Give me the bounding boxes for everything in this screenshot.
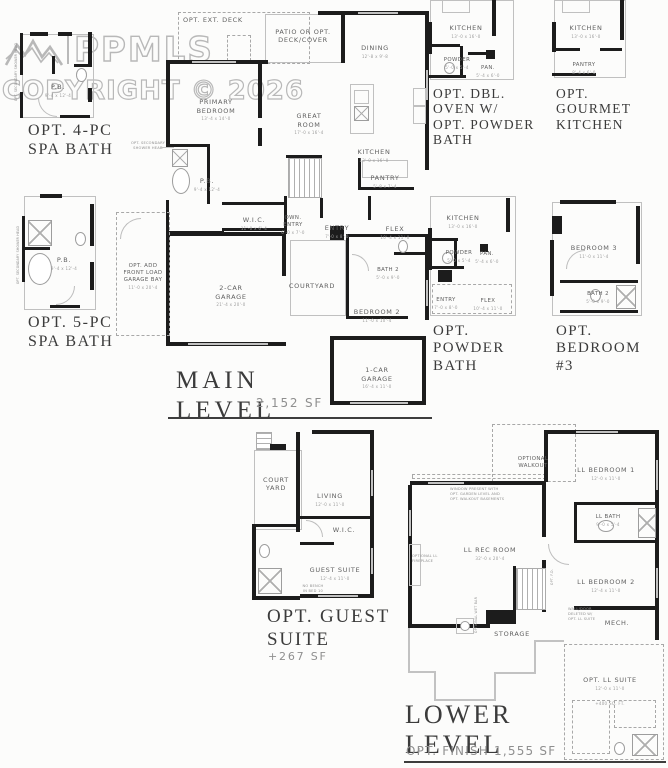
inset-title: OPT. GOURMET KITCHEN (556, 86, 631, 132)
tiny-annotation: OPT. SECONDARY SHOWER HEAD (16, 210, 21, 300)
room-label: LIVING12'-0 x 11'-0 (306, 484, 354, 507)
room-label: BEDROOM 311'-0 x 11'-4 (564, 236, 624, 259)
room-label: STORAGE (486, 630, 538, 638)
room-label: PANTRY8'-4 x 6'-0 (560, 55, 608, 75)
room-label: ENTRY7'-0 x 8'-0 (316, 216, 358, 239)
room-label: GUEST SUITE12'-4 x 11'-0 (304, 558, 366, 581)
room-label: PRIMARY BEDROOM13'-4 x 14'-0 (180, 90, 252, 122)
room-label: ENTRY7'-0 x 8'-0 (428, 290, 464, 310)
tiny-annotation: NO BENCH IN BED 10 (298, 584, 328, 594)
room-label: OPT. EXT. DECK (183, 16, 257, 24)
room-label: OPT. LL SUITE 12'-0 x 11'-0 +400 SQ. FT. (578, 668, 642, 706)
room-label: OWN. ENTRY6'-0 x 7'-0 (272, 208, 314, 235)
room-label: DINING12'-8 x 9'-8 (345, 36, 405, 59)
room-label: FLEX10'-4 x 11'-0 (468, 291, 508, 311)
room-label: OPT. ADD FRONT LOAD GARAGE BAY11'-0 x 20… (116, 256, 170, 290)
main-level-sf: 2,152 SF (256, 396, 323, 410)
room-label: COURT YARD (252, 476, 300, 493)
floor-plan-sheet: PPMLS COPYRIGHT © 2026 P.B.9'-4 x 12'-4 … (0, 0, 668, 768)
room-label: LL REC ROOM32'-0 x 20'-4 (458, 538, 522, 561)
room-label: 1-CAR GARAGE16'-4 x 11'-0 (348, 358, 406, 390)
room-label: KITCHEN13'-0 x 16'-0 (350, 140, 398, 163)
room-label: OPTIONAL WALKOUT (500, 456, 566, 470)
room-label: POWDER5'-0 x 5'-4 (436, 50, 478, 70)
tiny-annotation: OPTIONAL WET BAR (474, 590, 479, 640)
room-label: P.B.9'-4 x 12'-4 (42, 75, 74, 107)
lower-level-sf: OPT. FINISH 1,555 SF (406, 744, 556, 758)
room-label: BEDROOM 211'-0 x 10'-4 (348, 300, 406, 323)
room-label: FLEX10'-4 x 11'-0 (374, 217, 416, 240)
room-label: PAN.5'-4 x 6'-0 (474, 244, 500, 264)
inset-title: OPT. POWDER BATH (433, 323, 505, 375)
room-label: LL BEDROOM 112'-0 x 11'-0 (570, 458, 642, 481)
room-label: P.B.9'-4 x 12'-4 (190, 169, 224, 192)
room-label: PANTRY5'-8 x 7'-4 (362, 166, 408, 189)
room-label: W.I.C.11'-0 x 6'-4 (231, 208, 277, 231)
tiny-annotation: OPT. SECONDARY SHOWER HEAD (14, 32, 19, 112)
tiny-annotation: OPTIONAL LL FIREPLACE (412, 554, 444, 564)
room-label: W.I.C. (324, 526, 364, 534)
room-label: BATH 25'-0 x 9'-0 (366, 260, 410, 280)
inset-title: OPT. GUEST SUITE (267, 606, 390, 652)
room-label: GREAT ROOM17'-0 x 16'-4 (278, 104, 340, 136)
room-label: KITCHEN13'-0 x 16'-0 (438, 206, 488, 229)
inset-title: OPT. 4-PC SPA BATH (28, 122, 114, 160)
inset-sf: +267 SF (268, 650, 328, 663)
room-label: PAN.5'-4 x 6'-0 (476, 58, 500, 78)
tiny-annotation: WALL/DOOR DELETED W/ OPT. LL SUITE (568, 607, 602, 623)
room-label: BATH 25'-0 x 9'-0 (576, 284, 620, 304)
inset-title: OPT. BEDROOM #3 (556, 323, 641, 375)
room-label: COURTYARD (284, 282, 340, 290)
tiny-annotation: WINDOW PRESENT WITH OPT. GARDEN LEVEL AN… (450, 487, 506, 503)
room-label: 2-CAR GARAGE21'-4 x 20'-0 (202, 276, 260, 308)
tiny-annotation: OPT. F.D. (550, 562, 555, 592)
room-label: P.B.9'-4 x 12'-4 (48, 248, 80, 280)
divider (168, 417, 432, 419)
inset-title: OPT. 5-PC SPA BATH (28, 314, 114, 352)
room-label: LL BEDROOM 212'-4 x 11'-0 (570, 570, 642, 593)
inset-title: OPT. DBL. OVEN W/ OPT. POWDER BATH (433, 86, 534, 148)
room-label: LL BATH9'-0 x 5'-4 (586, 507, 630, 527)
divider (404, 761, 666, 763)
room-label: PATIO OR OPT. DECK/COVER (262, 28, 344, 45)
room-label: KITCHEN13'-0 x 16'-0 (442, 16, 490, 39)
room-label: KITCHEN13'-0 x 16'-0 (562, 16, 610, 39)
